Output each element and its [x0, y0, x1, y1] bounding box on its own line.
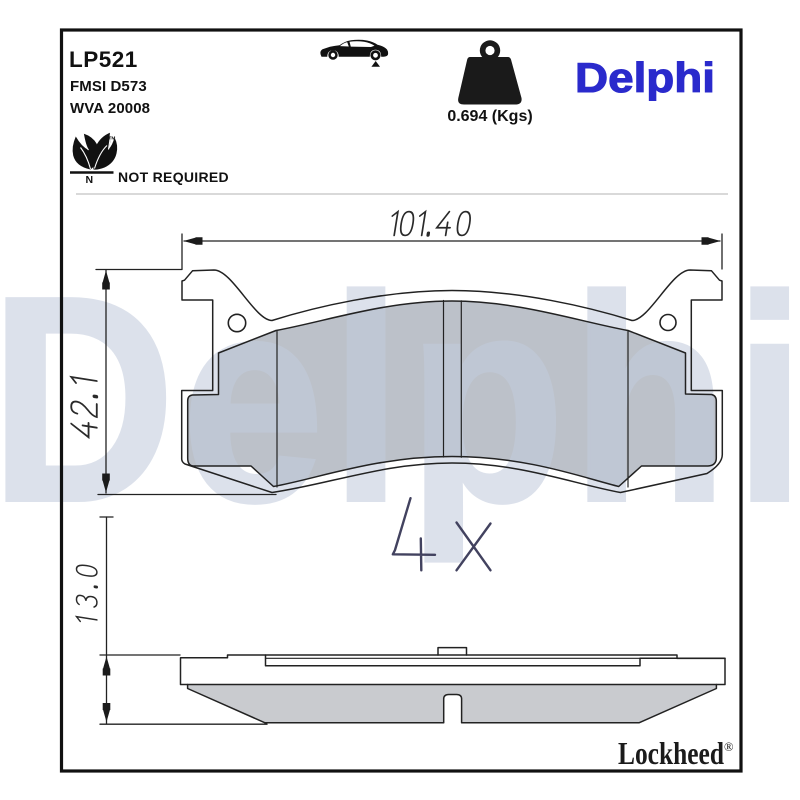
svg-text:WVA 20008: WVA 20008: [70, 100, 150, 117]
svg-text:Delphi: Delphi: [0, 236, 800, 563]
svg-text:®: ®: [724, 740, 734, 754]
svg-text:NOT REQUIRED: NOT REQUIRED: [118, 169, 229, 185]
svg-text:0.694 (Kgs): 0.694 (Kgs): [447, 108, 532, 125]
svg-text:Lockheed: Lockheed: [618, 736, 724, 771]
svg-text:N: N: [86, 174, 94, 186]
svg-text:Delphi: Delphi: [575, 54, 715, 101]
svg-text:TM: TM: [109, 136, 116, 142]
svg-text:LP521: LP521: [69, 47, 138, 72]
svg-text:FMSI D573: FMSI D573: [70, 78, 147, 95]
